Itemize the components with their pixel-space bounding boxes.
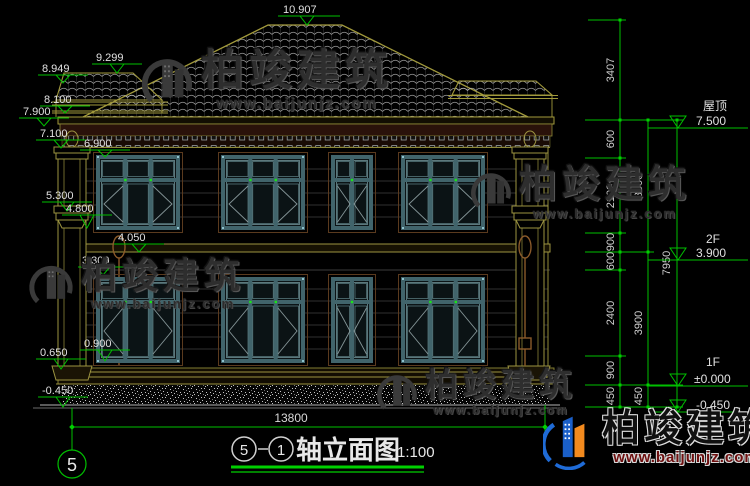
window-1f-1 xyxy=(94,275,183,366)
dim-label: 900 xyxy=(605,233,617,251)
elevation-label: 4.800 xyxy=(66,203,94,215)
f2-label: 2F xyxy=(706,232,720,246)
plinth-molding xyxy=(58,368,554,384)
title-scale: 1:100 xyxy=(397,444,435,461)
elevation-label: 8.100 xyxy=(44,94,72,106)
elevation-label: 0.900 xyxy=(84,338,112,350)
elevation-label: 7.100 xyxy=(40,128,68,140)
dim-label: 600 xyxy=(605,252,617,270)
roof-level-value: 7.500 xyxy=(696,114,726,128)
elevation-label: 10.907 xyxy=(283,4,317,16)
elevation-label: 4.050 xyxy=(118,232,146,244)
title-bubble-right: 1 xyxy=(277,442,285,459)
title-bubble-left: 5 xyxy=(240,442,248,459)
elevation-label: 0.650 xyxy=(40,347,68,359)
elevation-label: 3.300 xyxy=(82,255,110,267)
window-1f-3 xyxy=(329,275,376,366)
dim-label: 2100 xyxy=(605,184,617,208)
plinth-speckle-band xyxy=(62,385,550,404)
window-2f-2 xyxy=(219,153,308,233)
elevation-svg: 10.907 9.299 8.949 8.100 7.900 7.100 6.9… xyxy=(0,0,750,486)
dim-label: 3600 xyxy=(633,174,645,198)
roof-level-label: 屋顶 xyxy=(703,99,727,113)
elevation-label: 9.299 xyxy=(96,52,124,64)
window-2f-3 xyxy=(329,153,376,233)
cornice xyxy=(58,117,554,148)
axis-bubble-number: 5 xyxy=(67,455,77,475)
title-text: 轴立面图 xyxy=(296,435,400,465)
elevation-label: 5.300 xyxy=(46,190,74,202)
dim-label: 900 xyxy=(605,361,617,379)
roof-right-wing xyxy=(452,81,552,95)
f1-label: 1F xyxy=(706,355,720,369)
window-1f-2 xyxy=(219,275,308,366)
dim-label: 3407 xyxy=(605,58,617,82)
elevation-label: 8.949 xyxy=(42,63,70,75)
f2-value: 3.900 xyxy=(696,246,726,260)
window-2f-1 xyxy=(94,153,183,233)
windows-2f xyxy=(94,153,488,233)
elevation-label: 6.900 xyxy=(84,138,112,150)
windows-1f xyxy=(94,275,488,366)
dim-label: 7950 xyxy=(661,251,673,275)
elevation-label: 7.900 xyxy=(23,106,51,118)
dim-label: 3900 xyxy=(633,311,645,335)
cad-elevation-drawing: 10.907 9.299 8.949 8.100 7.900 7.100 6.9… xyxy=(0,0,750,486)
dim-label: 600 xyxy=(605,130,617,148)
dim-label: 450 xyxy=(605,387,617,405)
window-1f-4 xyxy=(399,275,488,366)
window-2f-4 xyxy=(399,153,488,233)
dim-label: 450 xyxy=(633,387,645,405)
total-width-dim: 13800 xyxy=(274,411,308,425)
dim-label: 2400 xyxy=(605,301,617,325)
dentil-band xyxy=(62,136,550,147)
f1-value: ±0.000 xyxy=(694,372,731,386)
elevation-label: -0.450 xyxy=(42,385,73,397)
ground-value: -0.450 xyxy=(696,398,730,412)
